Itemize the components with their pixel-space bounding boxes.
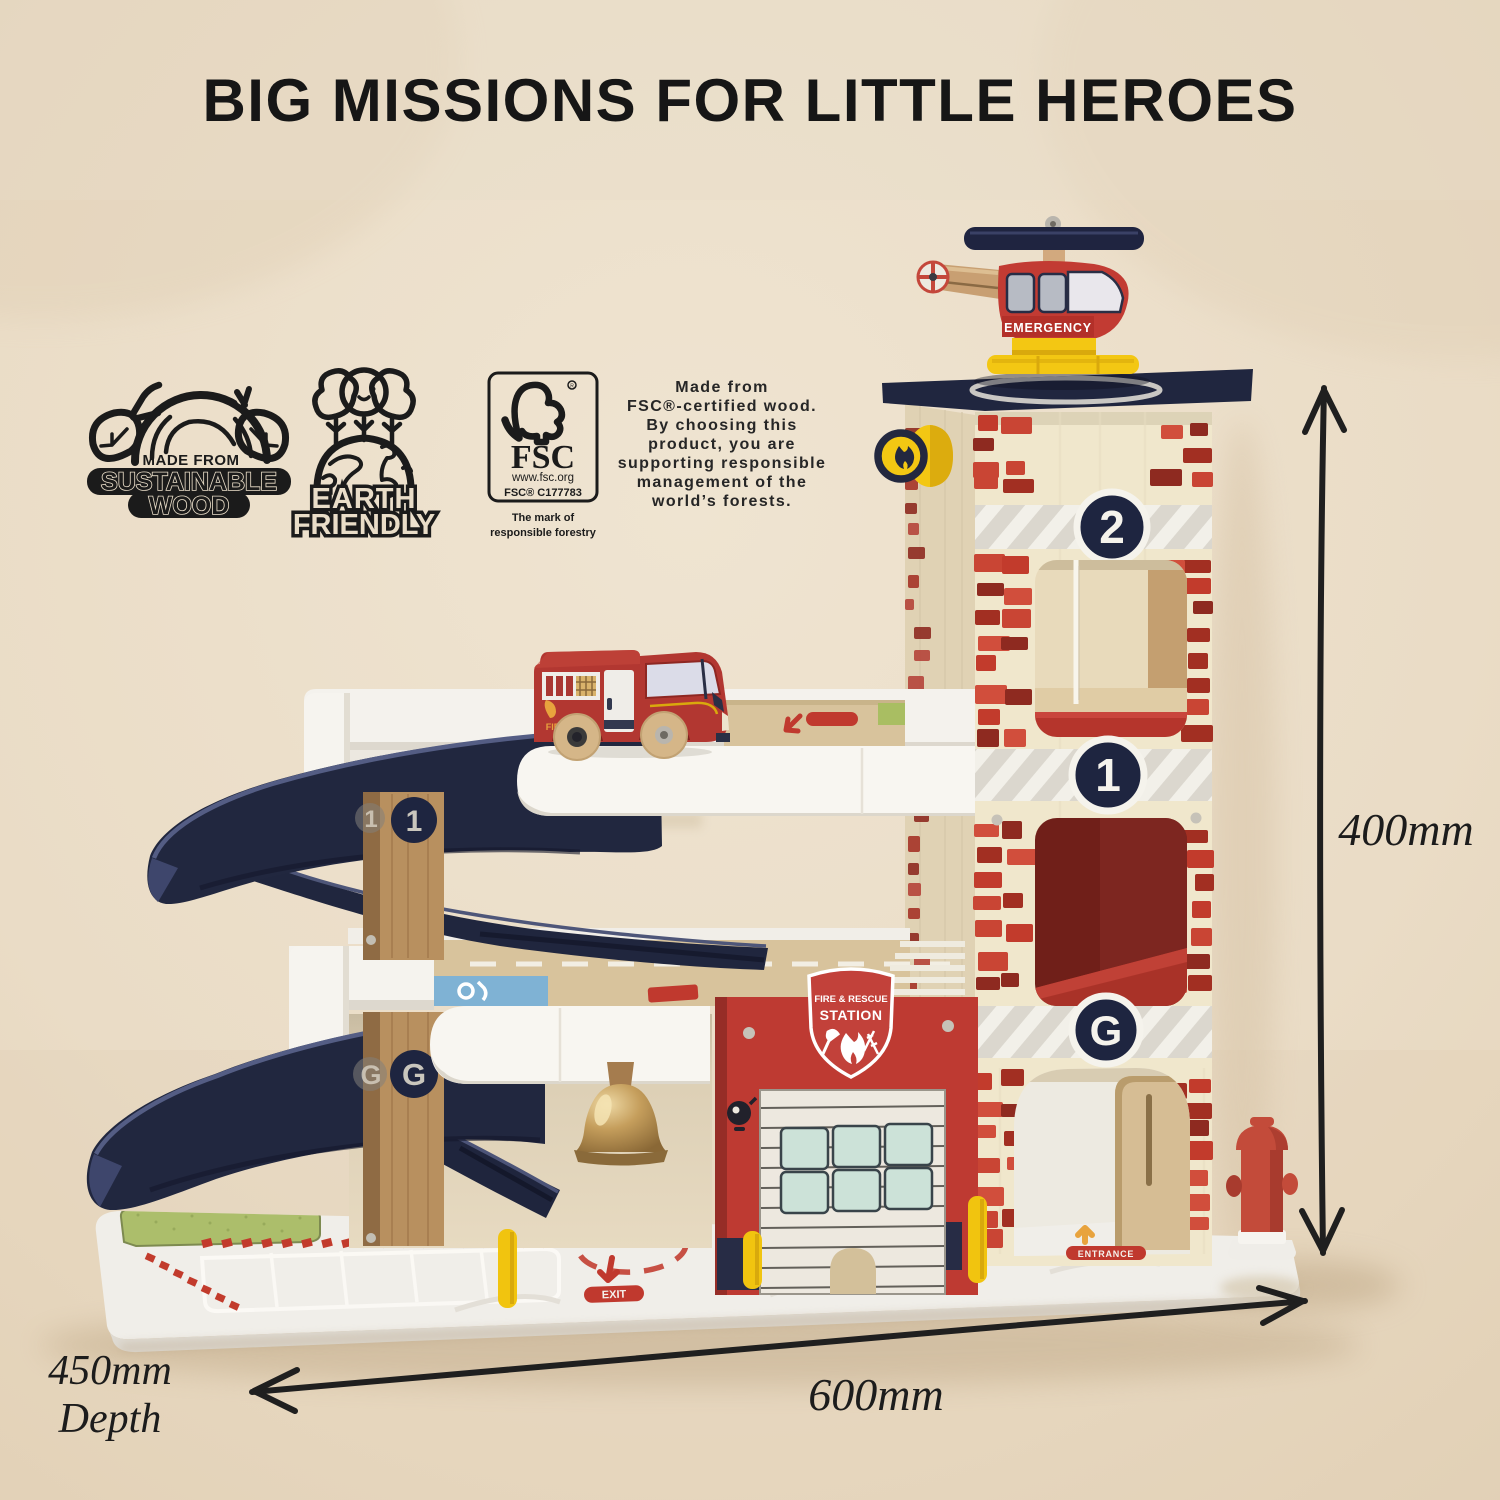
svg-text:STATION: STATION: [820, 1007, 883, 1023]
svg-text:world’s forests.: world’s forests.: [651, 493, 792, 510]
svg-text:management of the: management of the: [637, 474, 808, 491]
svg-text:G: G: [402, 1057, 426, 1092]
svg-text:EMERGENCY: EMERGENCY: [1004, 321, 1092, 335]
svg-text:R: R: [570, 384, 574, 390]
svg-text:ENTRANCE: ENTRANCE: [1078, 1249, 1134, 1259]
svg-text:1: 1: [1095, 749, 1121, 801]
svg-text:2: 2: [1099, 501, 1125, 553]
svg-text:1: 1: [364, 806, 377, 833]
svg-text:By choosing this: By choosing this: [646, 417, 797, 434]
svg-text:supporting responsible: supporting responsible: [618, 455, 827, 472]
svg-text:product, you are: product, you are: [648, 436, 796, 453]
svg-text:G: G: [1090, 1007, 1123, 1054]
svg-text:WOOD: WOOD: [149, 492, 230, 520]
svg-text:EXIT: EXIT: [602, 1289, 627, 1302]
svg-text:responsible forestry: responsible forestry: [490, 527, 597, 539]
svg-text:1: 1: [406, 805, 423, 838]
svg-text:400mm: 400mm: [1338, 804, 1473, 855]
svg-text:Depth: Depth: [58, 1396, 162, 1442]
svg-text:FIRE & RESCUE: FIRE & RESCUE: [814, 994, 887, 1005]
svg-text:MADE FROM: MADE FROM: [143, 452, 240, 469]
svg-text:The mark of: The mark of: [512, 512, 575, 524]
svg-text:FSC®-certified wood.: FSC®-certified wood.: [627, 398, 817, 415]
svg-text:G: G: [360, 1060, 381, 1090]
svg-text:www.fsc.org: www.fsc.org: [511, 472, 574, 484]
svg-text:600mm: 600mm: [808, 1369, 943, 1420]
svg-text:FRIENDLY: FRIENDLY: [293, 509, 435, 541]
svg-text:450mm: 450mm: [48, 1348, 172, 1394]
svg-text:Made from: Made from: [675, 379, 769, 396]
svg-text:FSC: FSC: [511, 439, 575, 476]
svg-text:BIG MISSIONS FOR LITTLE HEROES: BIG MISSIONS FOR LITTLE HEROES: [202, 67, 1297, 134]
svg-text:FSC® C177783: FSC® C177783: [504, 487, 582, 499]
